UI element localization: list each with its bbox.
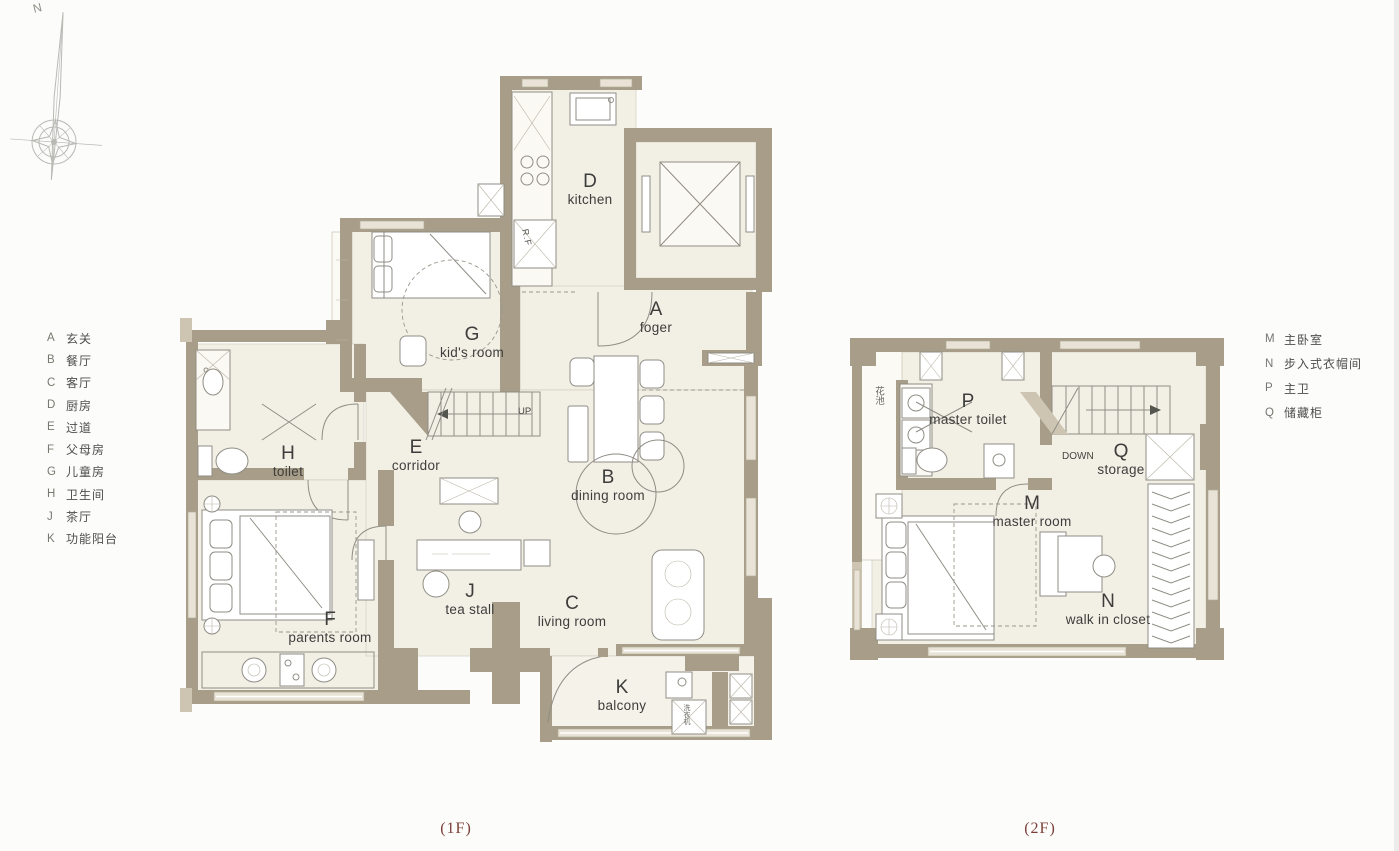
room-letter: Q	[1097, 442, 1144, 461]
legend-letter: C	[47, 377, 66, 389]
floorplan-1f	[180, 70, 780, 750]
stairs-up-label: UP	[518, 406, 531, 417]
room-name: dining room	[571, 489, 645, 503]
legend-letter: A	[47, 332, 66, 344]
room-name: foger	[640, 321, 672, 335]
legend-letter: J	[47, 511, 66, 523]
legend-floor1: A玄关 B餐厅 C客厅 D厨房 E过道 F父母房 G儿童房 H卫生间 J茶厅 K…	[47, 327, 118, 550]
legend-item: J茶厅	[47, 505, 118, 527]
room-letter: C	[538, 594, 607, 613]
room-letter: H	[273, 444, 303, 463]
room-name: storage	[1097, 463, 1144, 477]
room-letter: G	[440, 325, 504, 344]
legend-label: 父母房	[66, 441, 105, 458]
legend-letter: K	[47, 533, 66, 545]
room-name: walk in closet	[1066, 613, 1150, 627]
legend-label: 儿童房	[66, 463, 105, 480]
legend-item: M主卧室	[1265, 327, 1362, 352]
room-label-kitchen: D kitchen	[568, 172, 613, 207]
legend-letter: D	[47, 399, 66, 411]
legend-item: D厨房	[47, 394, 118, 416]
room-letter: A	[640, 300, 672, 319]
legend-item: A玄关	[47, 327, 118, 349]
legend-item: G儿童房	[47, 461, 118, 483]
legend-label: 功能阳台	[66, 530, 118, 547]
room-letter: J	[445, 582, 494, 601]
legend-letter: H	[47, 488, 66, 500]
room-letter: D	[568, 172, 613, 191]
flower-bed-label: 花池	[871, 386, 885, 405]
room-label-corridor: E corridor	[392, 438, 440, 473]
legend-item: K功能阳台	[47, 528, 118, 550]
room-name: tea stall	[445, 603, 494, 617]
room-letter: K	[598, 678, 647, 697]
legend-label: 茶厅	[66, 508, 92, 525]
room-label-balcony: K balcony	[598, 678, 647, 713]
walkin-closet	[1148, 484, 1194, 648]
caption-floor1: (1F)	[440, 820, 472, 838]
legend-letter: G	[47, 466, 66, 478]
legend-item: E过道	[47, 416, 118, 438]
legend-label: 主卧室	[1284, 331, 1323, 348]
legend-letter: B	[47, 354, 66, 366]
legend-label: 卫生间	[66, 486, 105, 503]
room-letter: F	[288, 610, 371, 629]
room-name: master room	[992, 515, 1071, 529]
storage-closet	[1146, 434, 1194, 480]
legend-item: H卫生间	[47, 483, 118, 505]
room-label-dining: B dining room	[571, 468, 645, 503]
legend-item: C客厅	[47, 372, 118, 394]
room-name: kitchen	[568, 193, 613, 207]
legend-item: B餐厅	[47, 349, 118, 371]
room-label-master-toilet: P master toilet	[929, 392, 1006, 427]
legend-label: 玄关	[66, 330, 92, 347]
legend-label: 储藏柜	[1284, 404, 1323, 421]
room-label-tea-stall: J tea stall	[445, 582, 494, 617]
legend-item: P主卫	[1265, 376, 1362, 401]
washing-machine-label: 洗衣机	[681, 704, 691, 725]
legend-item: N步入式衣帽间	[1265, 352, 1362, 377]
dining-furniture	[568, 356, 664, 462]
legend-label: 主卫	[1284, 380, 1310, 397]
caption-floor2: (2F)	[1024, 820, 1056, 838]
room-letter: M	[992, 494, 1071, 513]
room-label-foyer: A foger	[640, 300, 672, 335]
room-name: master toilet	[929, 413, 1006, 427]
floorplan-page: N A玄关 B餐厅 C客厅 D厨房 E过道 F父母房 G儿童房 H卫生间 J茶厅…	[0, 0, 1399, 851]
legend-item: Q储藏柜	[1265, 401, 1362, 426]
legend-label: 餐厅	[66, 352, 92, 369]
legend-label: 过道	[66, 419, 92, 436]
legend-letter: E	[47, 421, 66, 433]
scan-edge	[1394, 0, 1399, 851]
legend-floor2: M主卧室 N步入式衣帽间 P主卫 Q储藏柜	[1265, 327, 1362, 425]
room-label-kids-room: G kid's room	[440, 325, 504, 360]
room-label-master-room: M master room	[992, 494, 1071, 529]
room-label-toilet: H toilet	[273, 444, 303, 479]
room-name: corridor	[392, 459, 440, 473]
room-letter: B	[571, 468, 645, 487]
room-label-living: C living room	[538, 594, 607, 629]
room-label-walkin-closet: N walk in closet	[1066, 592, 1150, 627]
legend-letter: M	[1265, 333, 1284, 345]
legend-label: 厨房	[66, 397, 92, 414]
compass-rose	[4, 2, 114, 202]
room-letter: E	[392, 438, 440, 457]
room-label-parents: F parents room	[288, 610, 371, 645]
legend-label: 客厅	[66, 374, 92, 391]
legend-letter: P	[1265, 382, 1284, 394]
room-letter: N	[1066, 592, 1150, 611]
legend-item: F父母房	[47, 438, 118, 460]
room-label-storage: Q storage	[1097, 442, 1144, 477]
legend-label: 步入式衣帽间	[1284, 355, 1362, 372]
room-name: balcony	[598, 699, 647, 713]
room-name: living room	[538, 615, 607, 629]
room-name: parents room	[288, 631, 371, 645]
room-name: kid's room	[440, 346, 504, 360]
legend-letter: F	[47, 444, 66, 456]
legend-letter: N	[1265, 358, 1284, 370]
stairs-down-label: DOWN	[1062, 451, 1094, 462]
room-name: toilet	[273, 465, 303, 479]
room-letter: P	[929, 392, 1006, 411]
legend-letter: Q	[1265, 407, 1284, 419]
